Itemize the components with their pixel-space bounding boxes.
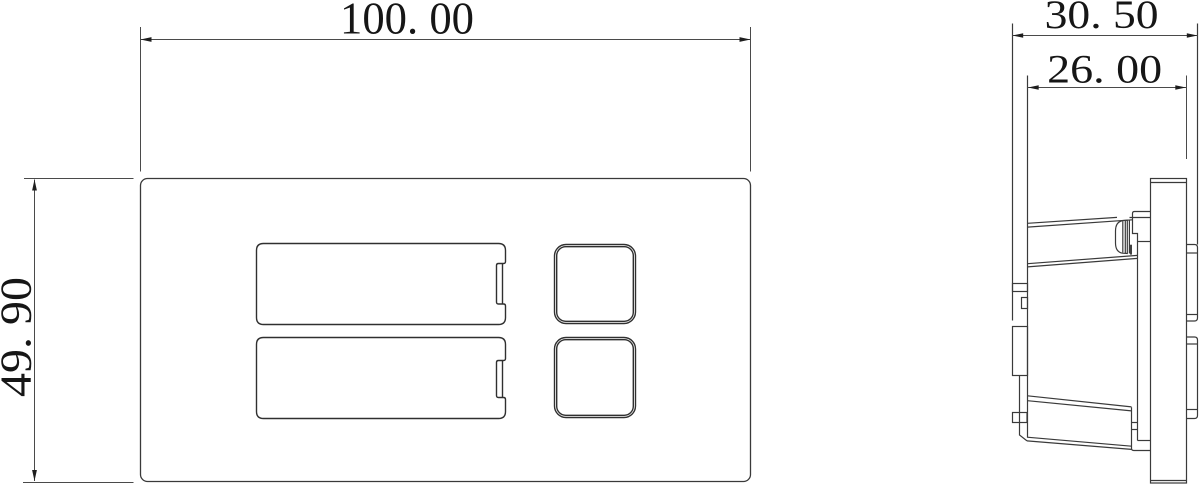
svg-text:30. 50: 30. 50 xyxy=(1045,0,1159,37)
svg-text:100. 00: 100. 00 xyxy=(340,0,474,44)
svg-text:26. 00: 26. 00 xyxy=(1047,47,1162,92)
svg-text:49. 90: 49. 90 xyxy=(0,277,41,397)
